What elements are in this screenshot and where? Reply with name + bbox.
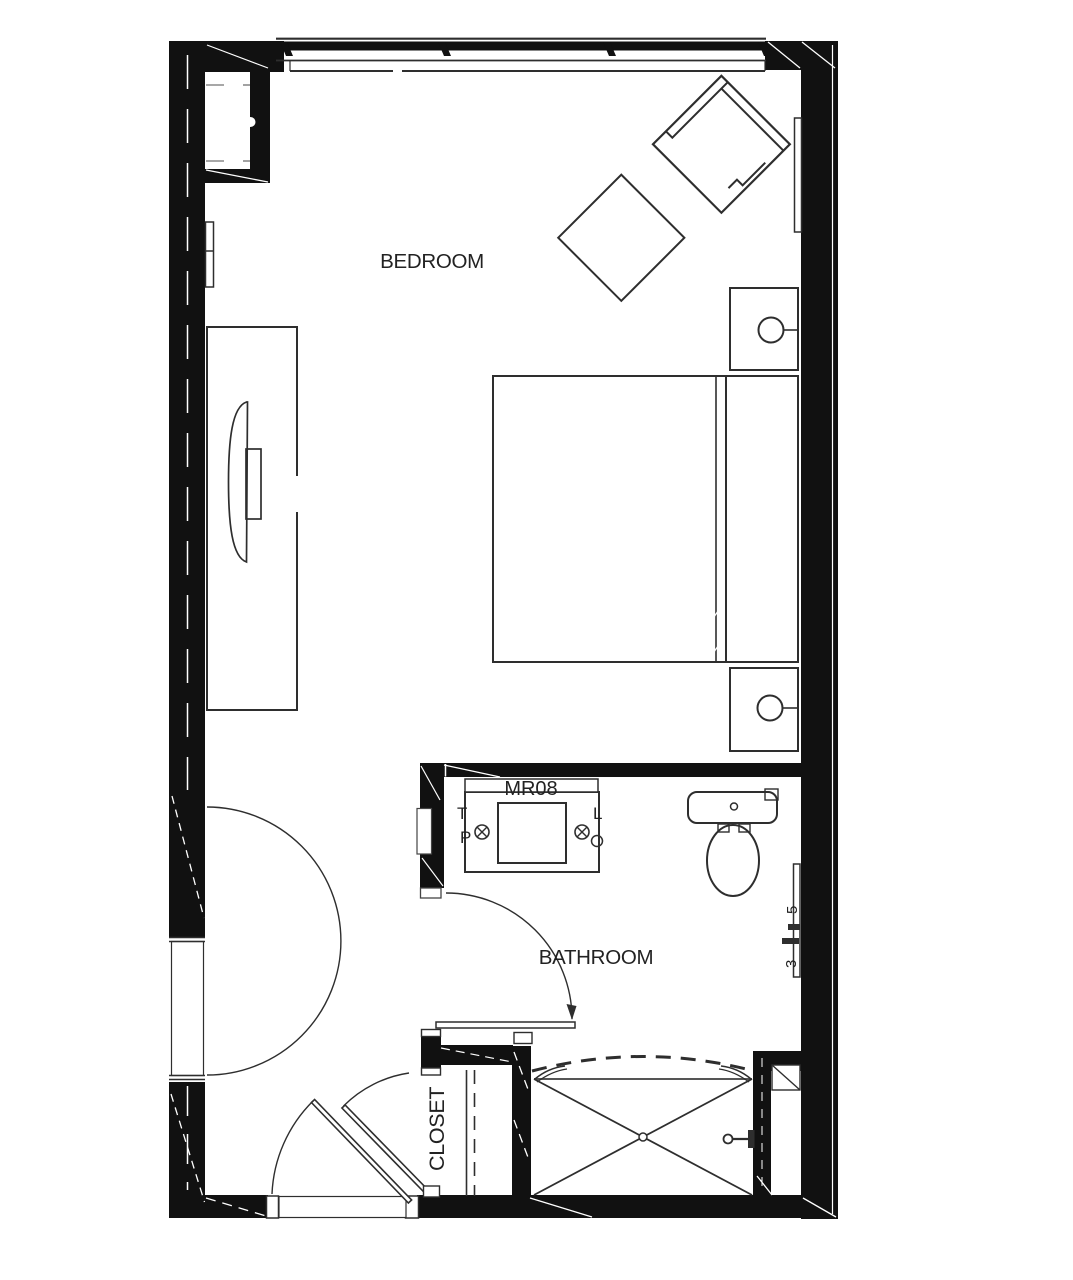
svg-text:CLOSET: CLOSET	[425, 1087, 449, 1171]
svg-text:5: 5	[784, 906, 801, 914]
svg-text:BATHROOM: BATHROOM	[539, 946, 654, 969]
svg-text:BEDROOM: BEDROOM	[380, 250, 484, 273]
svg-text:L: L	[593, 804, 602, 823]
svg-text:T: T	[457, 804, 467, 823]
svg-text:P: P	[460, 828, 471, 847]
svg-text:3: 3	[783, 960, 800, 968]
svg-text:MR08: MR08	[504, 778, 557, 800]
